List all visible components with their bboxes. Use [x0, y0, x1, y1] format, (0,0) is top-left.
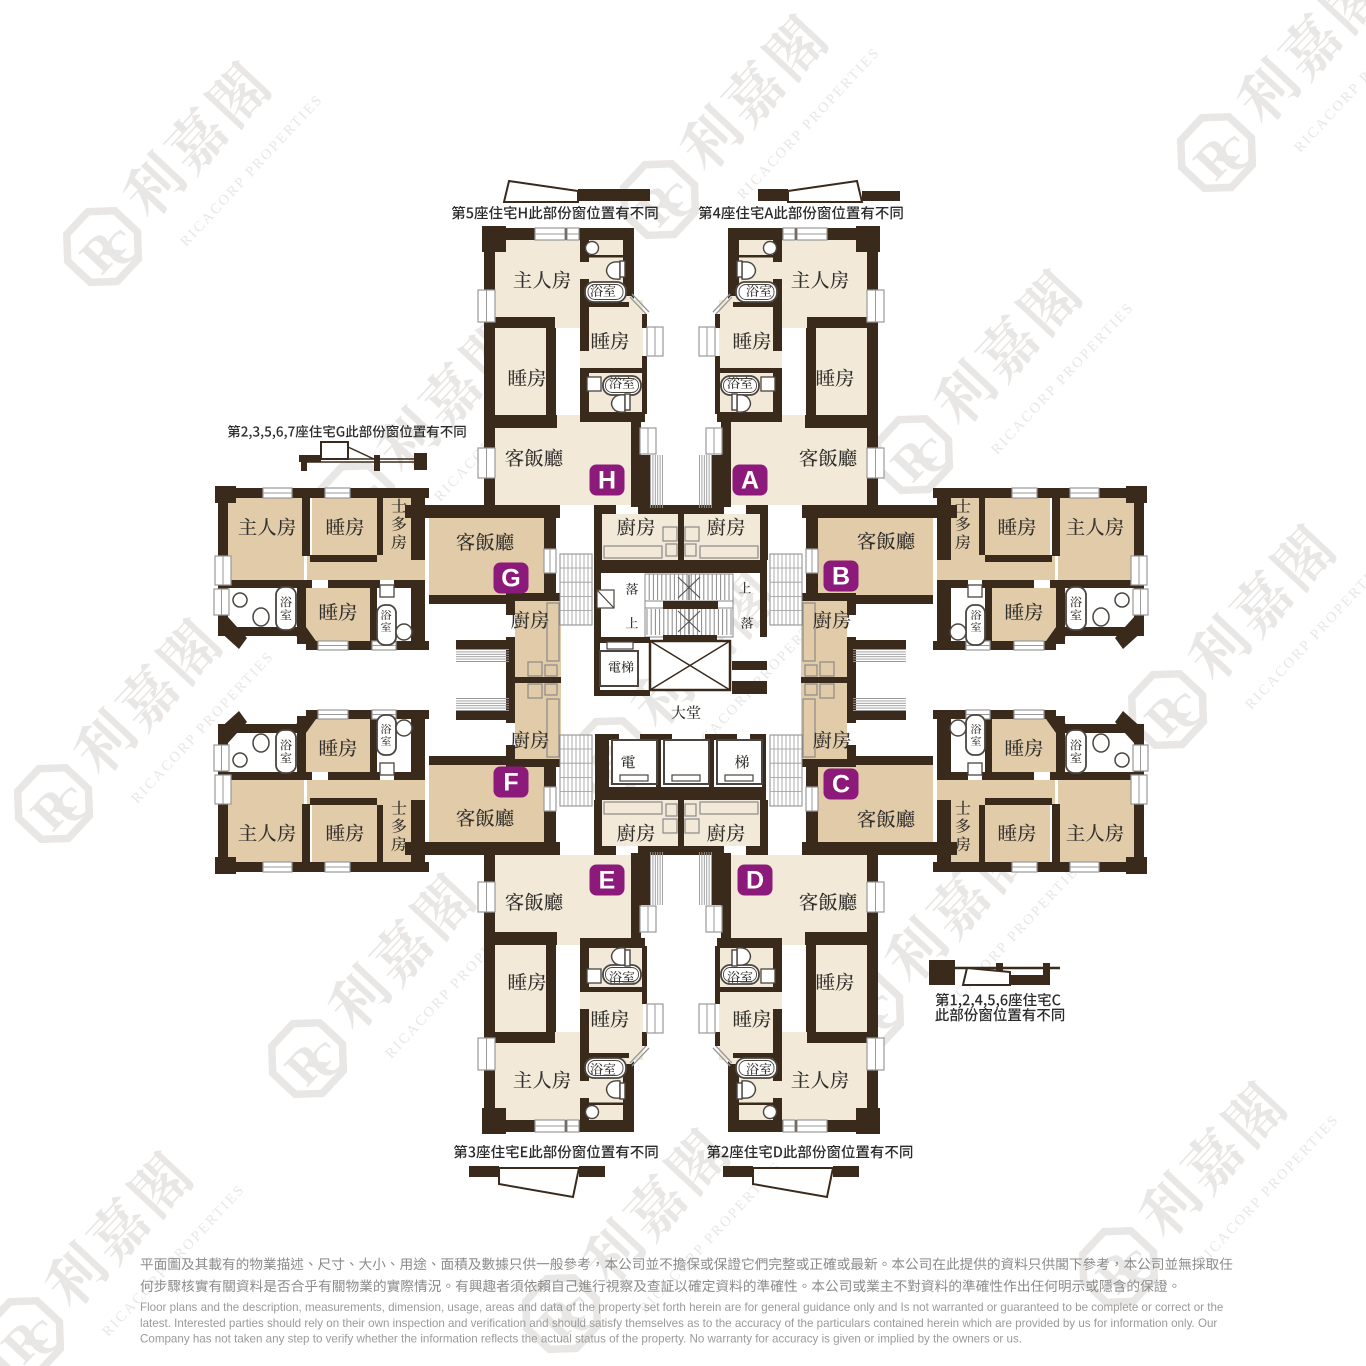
svg-text:E: E [599, 867, 616, 895]
svg-text:C: C [832, 771, 850, 799]
svg-text:Company has not taken any step: Company has not taken any step to verify… [140, 1333, 1022, 1346]
svg-text:G: G [501, 565, 520, 593]
svg-text:H: H [598, 467, 616, 495]
svg-text:A: A [741, 467, 759, 495]
svg-text:F: F [503, 769, 518, 797]
svg-text:B: B [832, 563, 850, 591]
svg-text:D: D [746, 867, 764, 895]
svg-text:Floor plans and the descriptio: Floor plans and the description, measure… [140, 1301, 1223, 1314]
svg-text:latest. Interested parties sho: latest. Interested parties should rely o… [140, 1317, 1217, 1330]
